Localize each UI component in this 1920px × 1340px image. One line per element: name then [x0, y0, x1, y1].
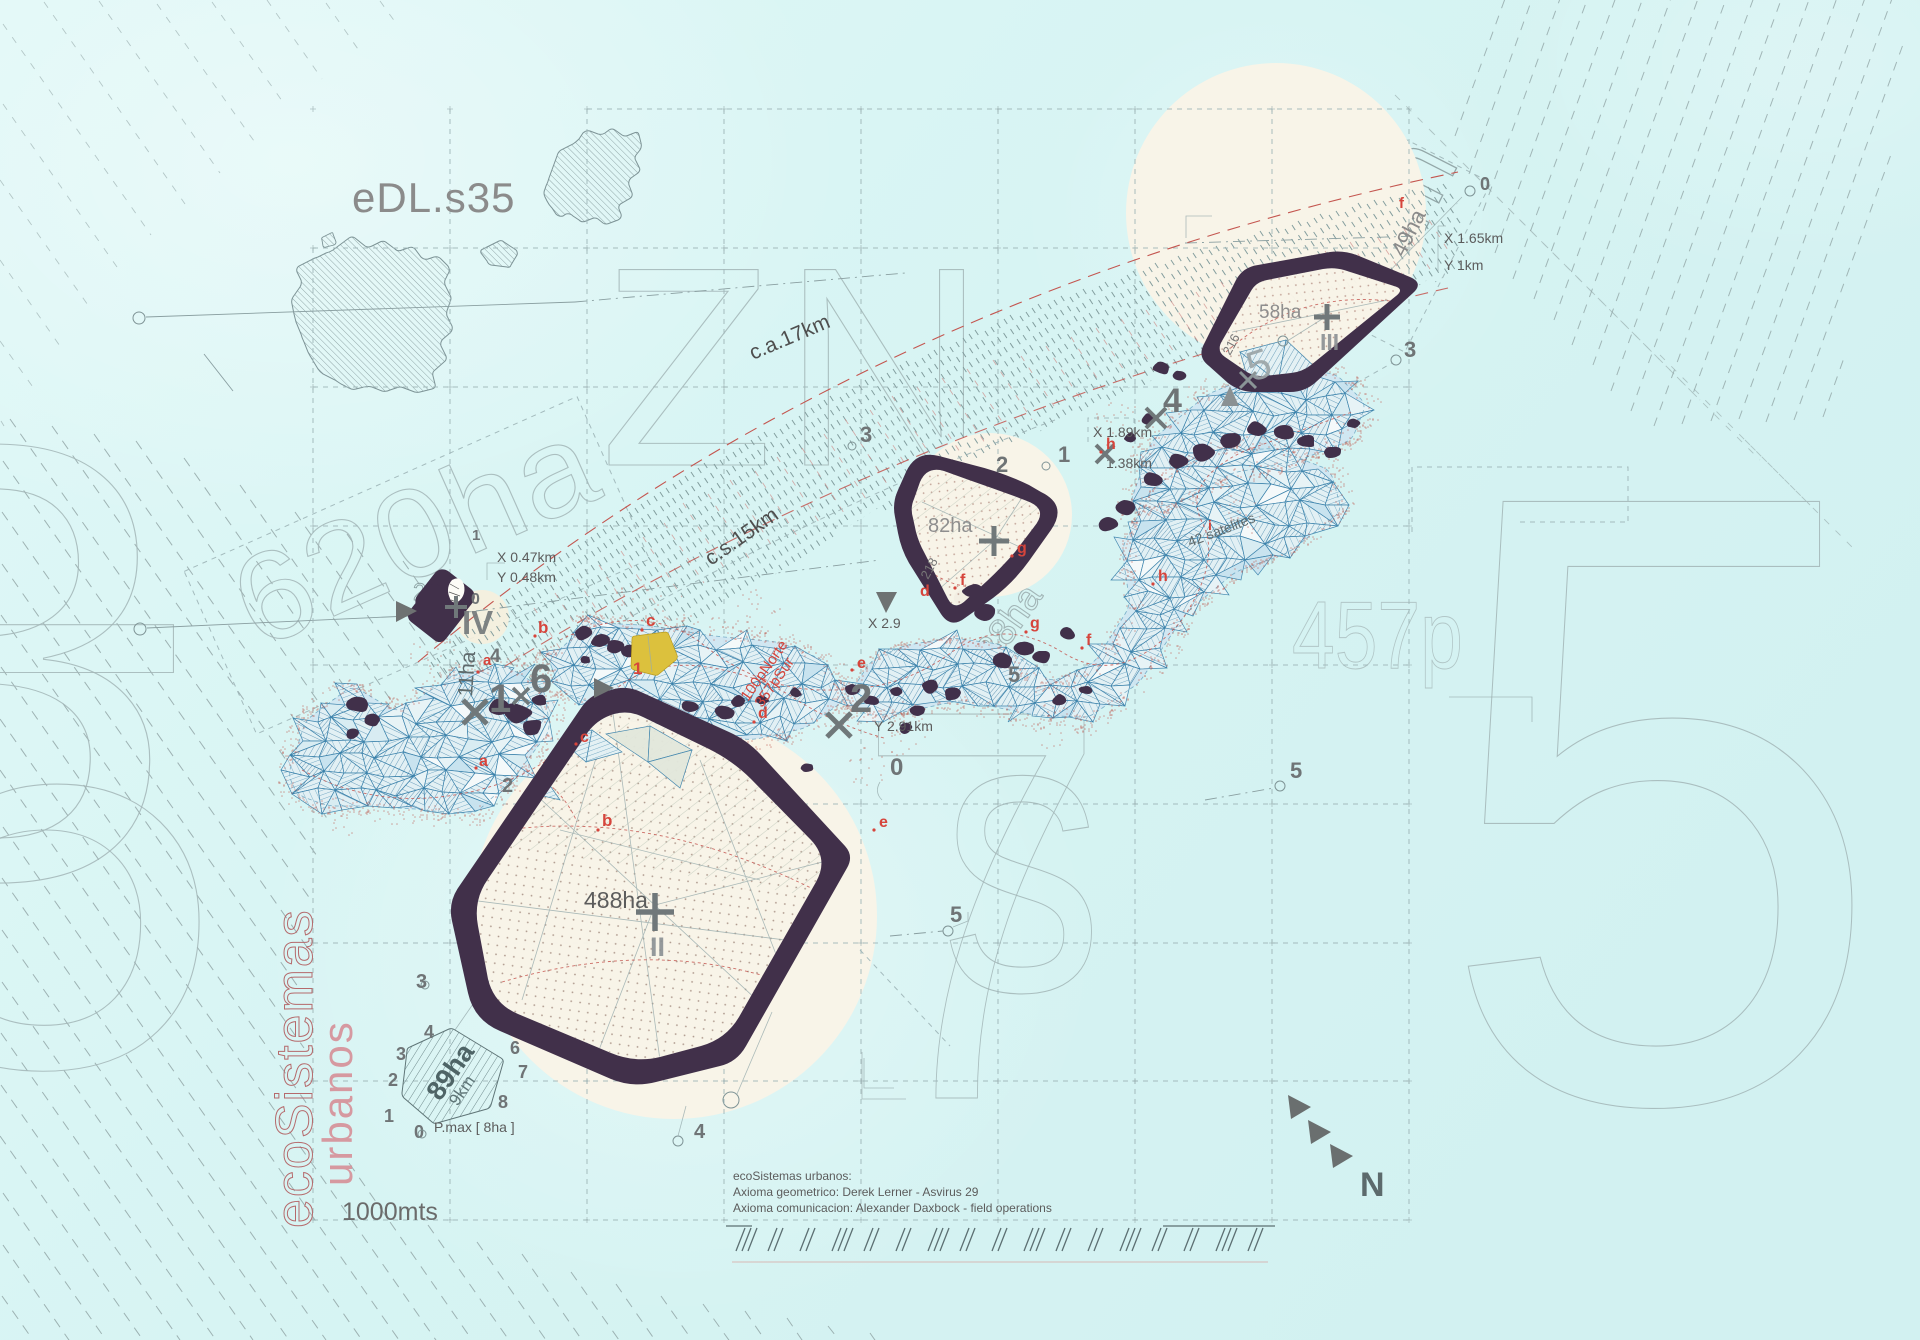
svg-text:2: 2 — [996, 452, 1008, 477]
svg-text:82ha: 82ha — [928, 515, 973, 537]
svg-text:3: 3 — [396, 1044, 406, 1064]
svg-text:e: e — [857, 655, 866, 672]
svg-text:c: c — [580, 729, 589, 746]
svg-text:5: 5 — [950, 902, 962, 927]
svg-text:f: f — [1086, 632, 1092, 649]
svg-text:1: 1 — [633, 659, 642, 678]
svg-text:0: 0 — [890, 754, 903, 781]
svg-text:g: g — [1017, 540, 1027, 557]
svg-text:1: 1 — [1058, 442, 1070, 467]
svg-text:3: 3 — [1404, 337, 1416, 362]
svg-text:6: 6 — [510, 1038, 520, 1058]
svg-text:1: 1 — [384, 1106, 394, 1126]
svg-text:ecoSistemas urbanos:: ecoSistemas urbanos: — [733, 1169, 852, 1183]
svg-text:N: N — [1360, 1166, 1385, 1204]
svg-text:d: d — [920, 583, 930, 600]
svg-text:2: 2 — [388, 1070, 398, 1090]
svg-text:h: h — [1158, 568, 1168, 585]
svg-text:5: 5 — [0, 486, 226, 1201]
svg-text:5: 5 — [1008, 662, 1020, 687]
svg-text:3: 3 — [416, 971, 427, 993]
svg-text:5: 5 — [1290, 758, 1302, 783]
svg-text:58ha: 58ha — [1259, 302, 1302, 323]
svg-text:2: 2 — [850, 677, 872, 721]
svg-text:X 0.47km: X 0.47km — [497, 549, 556, 565]
svg-text:IV: IV — [462, 604, 493, 641]
svg-text:e: e — [879, 814, 888, 831]
svg-text:P.max [ 8ha ]: P.max [ 8ha ] — [434, 1119, 515, 1135]
svg-text:c: c — [646, 611, 655, 630]
svg-text:4: 4 — [490, 646, 501, 667]
svg-text:11ha: 11ha — [454, 650, 480, 697]
svg-text:III: III — [1320, 329, 1339, 355]
svg-text:i: i — [1208, 517, 1212, 533]
svg-text:h: h — [1106, 436, 1116, 453]
svg-text:4: 4 — [1163, 382, 1182, 420]
svg-text:1000mts: 1000mts — [342, 1198, 438, 1226]
svg-text:g: g — [1030, 615, 1040, 632]
svg-text:Y 0.48km: Y 0.48km — [497, 569, 556, 585]
svg-text:2: 2 — [502, 775, 513, 797]
svg-text:4: 4 — [694, 1121, 706, 1143]
svg-text:3: 3 — [860, 422, 872, 447]
svg-text:d: d — [758, 705, 768, 722]
svg-text:5: 5 — [1436, 313, 1886, 1285]
svg-text:1: 1 — [472, 527, 480, 544]
svg-text:457p: 457p — [1292, 582, 1463, 689]
svg-text:X 2.9: X 2.9 — [868, 615, 901, 631]
svg-text:a: a — [479, 753, 488, 770]
svg-text:b: b — [602, 811, 612, 830]
svg-text:0: 0 — [1480, 174, 1490, 194]
svg-text:a: a — [483, 652, 492, 669]
svg-text:4: 4 — [424, 1022, 434, 1042]
svg-text:X 1.89km: X 1.89km — [1093, 424, 1152, 440]
svg-text:Axioma comunicacion: Alexander: Axioma comunicacion: Alexander Daxbock -… — [733, 1201, 1052, 1215]
svg-text:eDL.s35: eDL.s35 — [352, 174, 515, 221]
svg-text:Y 1km: Y 1km — [1444, 257, 1483, 273]
svg-text:7: 7 — [518, 1062, 528, 1082]
svg-text:II: II — [650, 932, 665, 962]
svg-text:Y 2.91km: Y 2.91km — [874, 718, 933, 734]
svg-text:X 1.65km: X 1.65km — [1444, 230, 1503, 246]
svg-text:488ha: 488ha — [584, 887, 648, 913]
svg-text:b: b — [538, 618, 548, 637]
svg-text:8: 8 — [498, 1092, 508, 1112]
svg-text:1: 1 — [489, 677, 511, 721]
svg-text:6: 6 — [530, 657, 552, 701]
svg-text:f: f — [960, 572, 966, 589]
svg-text:urbanos: urbanos — [314, 1020, 361, 1186]
svg-text:Axioma geometrico: Derek Lerne: Axioma geometrico: Derek Lerner - Asviru… — [733, 1185, 979, 1199]
